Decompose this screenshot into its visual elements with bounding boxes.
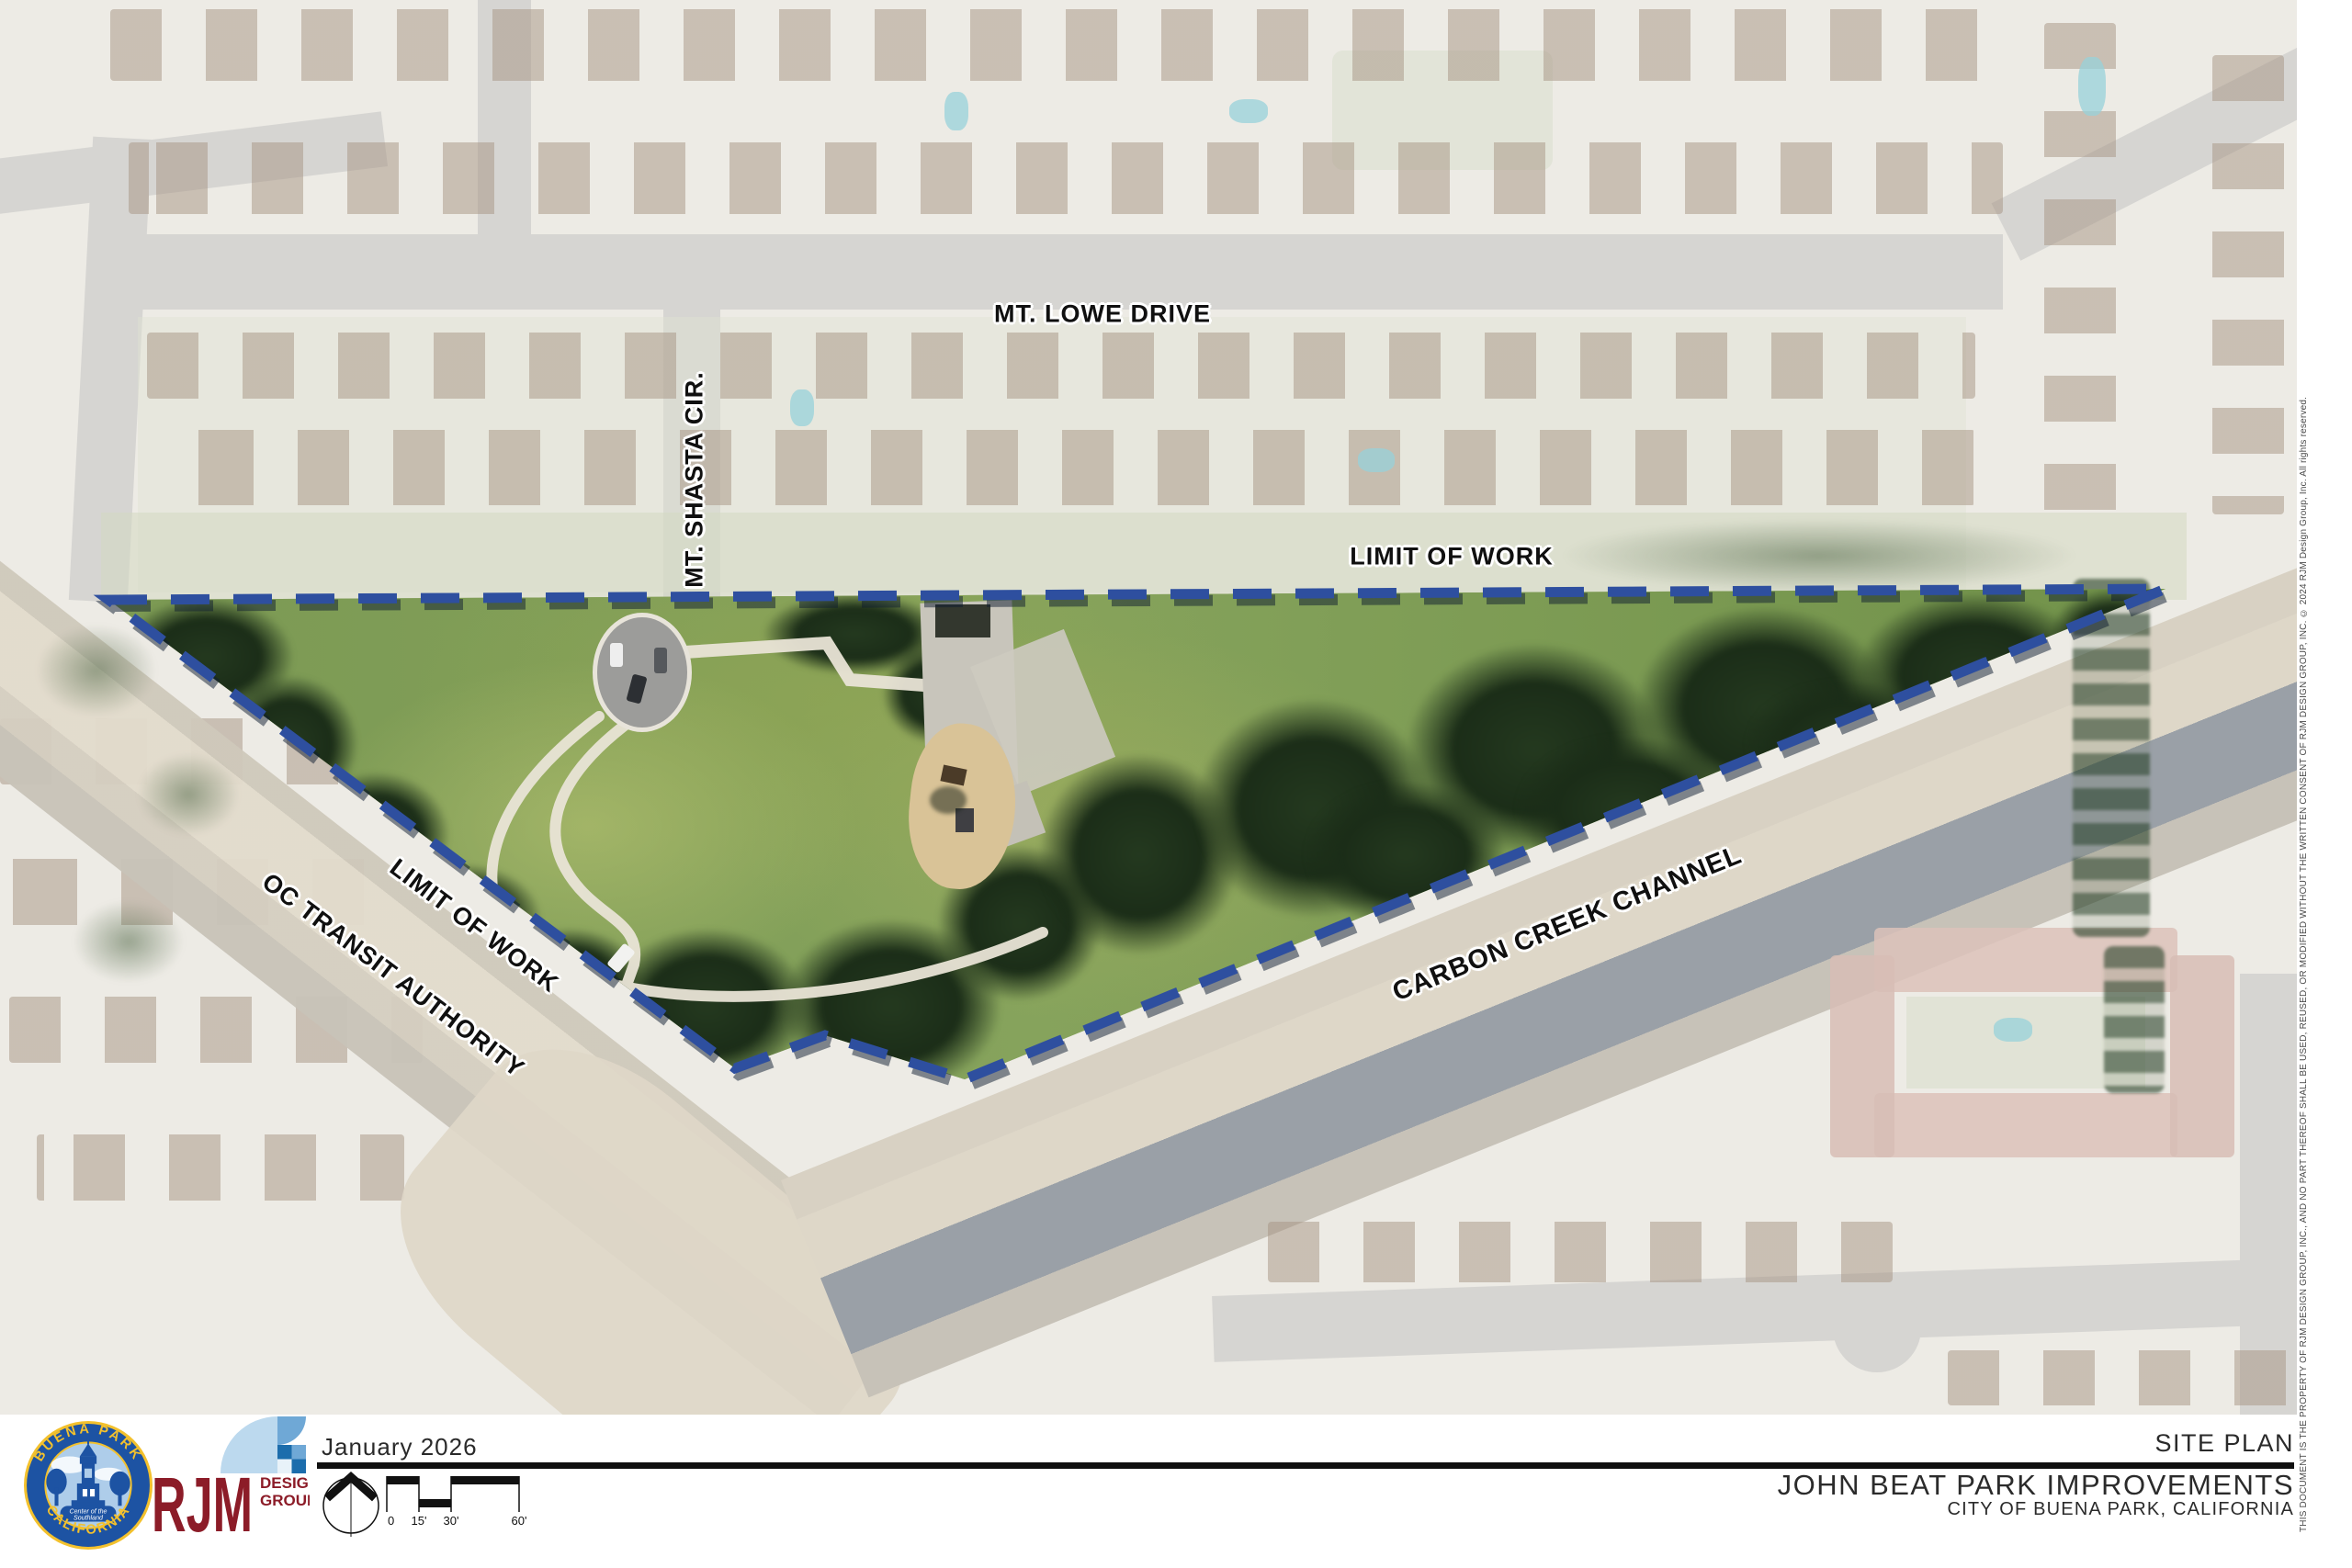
scale-tick-60: 60' <box>512 1514 527 1528</box>
seal-banner-line2: Southland <box>73 1515 104 1522</box>
north-arrow <box>322 1472 380 1538</box>
rjm-word-group: GROUP <box>260 1492 310 1509</box>
aerial-map: MT. LOWE DRIVE MT. SHASTA CIR. LIMIT OF … <box>0 0 2297 1415</box>
rjm-design-group-logo: RJM DESIGN GROUP <box>152 1416 310 1536</box>
limit-of-work-label-top: LIMIT OF WORK <box>1350 543 1553 571</box>
scale-bar: 0 15' 30' 60' <box>384 1470 531 1529</box>
buena-park-city-seal: Center of the Southland BUENA PARK CALIF… <box>23 1420 153 1551</box>
sheet-title: SITE PLAN <box>2154 1429 2294 1458</box>
scale-tick-0: 0 <box>388 1514 394 1528</box>
rjm-initials: RJM <box>152 1461 253 1536</box>
scale-tick-30: 30' <box>444 1514 459 1528</box>
street-label-mt-shasta-cir: MT. SHASTA CIR. <box>681 371 709 588</box>
scale-tick-15: 15' <box>412 1514 427 1528</box>
project-location: CITY OF BUENA PARK, CALIFORNIA <box>1947 1499 2294 1520</box>
copyright-disclaimer: THIS DOCUMENT IS THE PROPERTY OF RJM DES… <box>2299 614 2309 1532</box>
street-label-mt-lowe-drive: MT. LOWE DRIVE <box>994 300 1211 329</box>
plan-sheet: MT. LOWE DRIVE MT. SHASTA CIR. LIMIT OF … <box>0 0 2352 1568</box>
limit-of-work-boundary <box>0 0 2297 1415</box>
project-title: JOHN BEAT PARK IMPROVEMENTS <box>1778 1469 2294 1502</box>
rjm-word-design: DESIGN <box>260 1474 310 1492</box>
titleblock-rule <box>317 1462 2294 1469</box>
plan-date: January 2026 <box>322 1433 478 1461</box>
